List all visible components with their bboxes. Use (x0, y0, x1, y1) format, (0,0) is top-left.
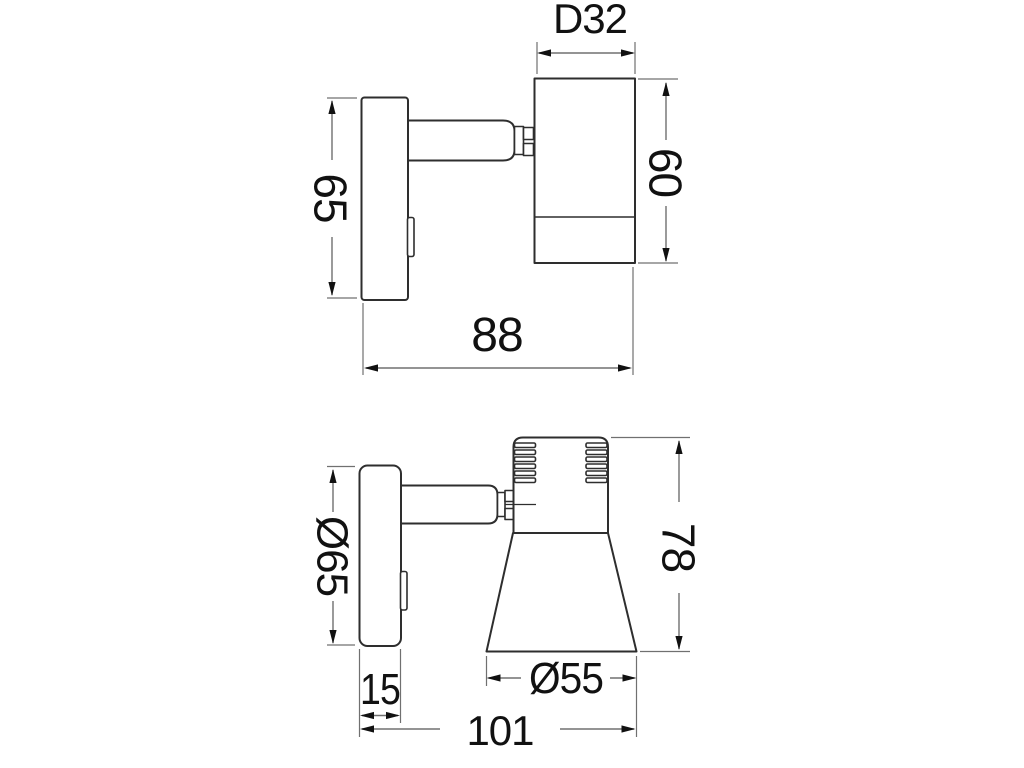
arrowhead-down (329, 630, 336, 644)
fin (515, 478, 536, 483)
spotlight-dimension-drawing: D32 60 65 88 (0, 0, 1024, 768)
arrowhead-right (622, 725, 636, 732)
dim-label-head-diameter: D32 (553, 0, 627, 42)
fin (586, 450, 607, 455)
fin (515, 464, 536, 469)
fin (586, 464, 607, 469)
dim-label-overall-width: 101 (466, 707, 533, 754)
upper-view-geometry (362, 79, 636, 301)
dim-head-length: 60 (638, 79, 692, 263)
arrowhead-down (328, 282, 335, 296)
arrowhead-right (623, 674, 637, 681)
arrowhead-down (675, 636, 682, 650)
extension-line (537, 42, 635, 74)
arrowhead-left (360, 725, 374, 732)
dim-shade-diameter: Ø55 (487, 654, 637, 703)
pivot-arm (408, 121, 515, 161)
lamp-head (535, 79, 636, 264)
dim-label-head-length: 60 (640, 148, 692, 197)
arrowhead-left (537, 49, 551, 56)
technical-drawing-canvas: D32 60 65 88 (0, 0, 1024, 768)
lower-view: Ø65 78 Ø55 15 101 (308, 438, 705, 755)
dim-plate-diameter: Ø65 (308, 467, 357, 646)
fin (586, 443, 607, 448)
shade-cone (487, 533, 637, 652)
dim-label-overall-height: 78 (653, 523, 705, 572)
switch-knob (408, 218, 415, 257)
pivot-joint-tab-bottom (524, 144, 534, 156)
fin (515, 471, 536, 476)
dim-label-plate-thickness: 15 (360, 665, 400, 714)
dim-plate-height: 65 (305, 98, 358, 298)
dim-head-diameter: D32 (537, 0, 635, 74)
switch-knob (401, 572, 408, 611)
arrowhead-up (329, 469, 336, 483)
pivot-joint-tab-top (524, 128, 534, 140)
fin (586, 471, 607, 476)
arrowhead-up (675, 440, 682, 454)
fin (515, 457, 536, 462)
arrowhead-up (662, 82, 669, 96)
lower-view-geometry (360, 438, 637, 652)
dim-label-shade-diameter: Ø55 (529, 654, 603, 703)
dim-label-plate-height: 65 (305, 173, 357, 222)
arrowhead-up (328, 100, 335, 114)
pivot-joint-neck (498, 493, 506, 517)
wall-plate (360, 466, 402, 647)
arrowhead-down (662, 248, 669, 262)
arrowhead-left (364, 364, 378, 371)
pivot-joint-tab-bottom (505, 509, 514, 520)
fin (586, 457, 607, 462)
arrowhead-right (618, 364, 632, 371)
fin (515, 443, 536, 448)
arrowhead-left (487, 674, 501, 681)
arrowhead-right (621, 49, 635, 56)
pivot-arm (401, 486, 498, 524)
dim-label-overall-depth: 88 (471, 309, 522, 362)
upper-view: D32 60 65 88 (305, 0, 692, 375)
pivot-joint-neck (515, 127, 524, 155)
fin (586, 478, 607, 483)
wall-plate (362, 98, 409, 301)
fin (515, 450, 536, 455)
dim-plate-thickness: 15 (360, 649, 401, 737)
pivot-joint-tab-top (505, 491, 514, 502)
dim-label-plate-diameter: Ø65 (308, 516, 357, 596)
